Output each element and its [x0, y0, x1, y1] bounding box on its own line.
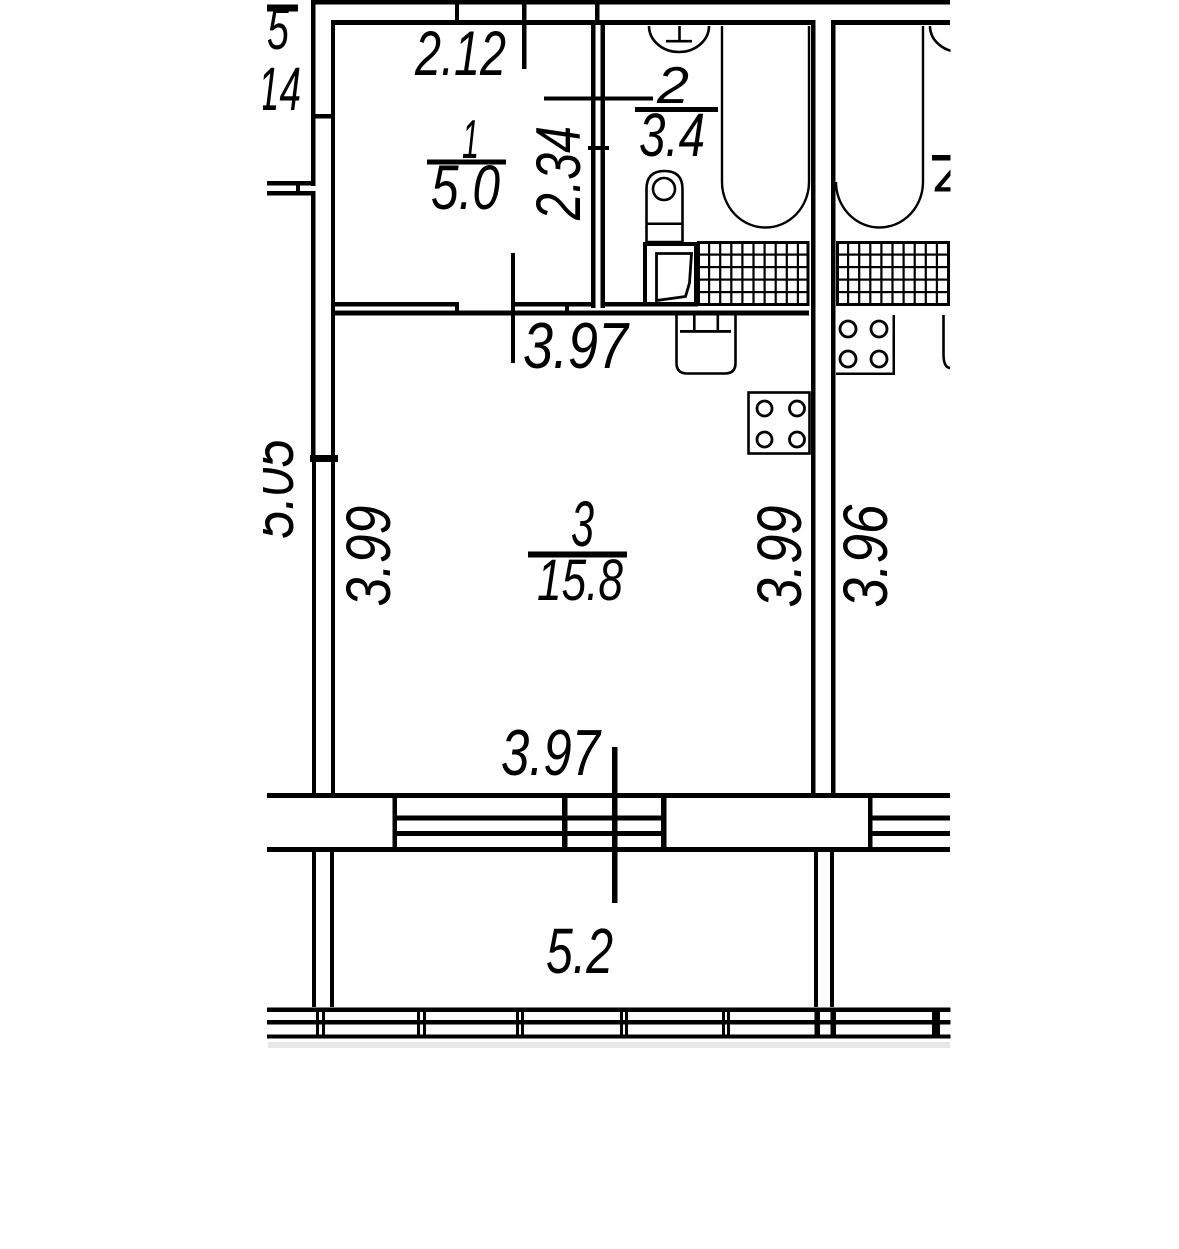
svg-text:5.0: 5.0 [431, 153, 500, 223]
svg-text:3.99: 3.99 [334, 506, 404, 607]
svg-text:2.34: 2.34 [524, 126, 594, 221]
svg-text:5.2: 5.2 [546, 915, 613, 987]
svg-text:5: 5 [267, 0, 290, 62]
svg-text:3.4: 3.4 [639, 101, 705, 169]
svg-text:14: 14 [258, 55, 301, 123]
svg-text:3.97: 3.97 [501, 716, 602, 789]
svg-text:15.8: 15.8 [537, 548, 623, 613]
svg-text:3.96: 3.96 [831, 504, 901, 608]
svg-text:2.12: 2.12 [414, 19, 506, 89]
svg-text:3.99: 3.99 [745, 506, 815, 608]
svg-text:3.97: 3.97 [523, 309, 630, 382]
